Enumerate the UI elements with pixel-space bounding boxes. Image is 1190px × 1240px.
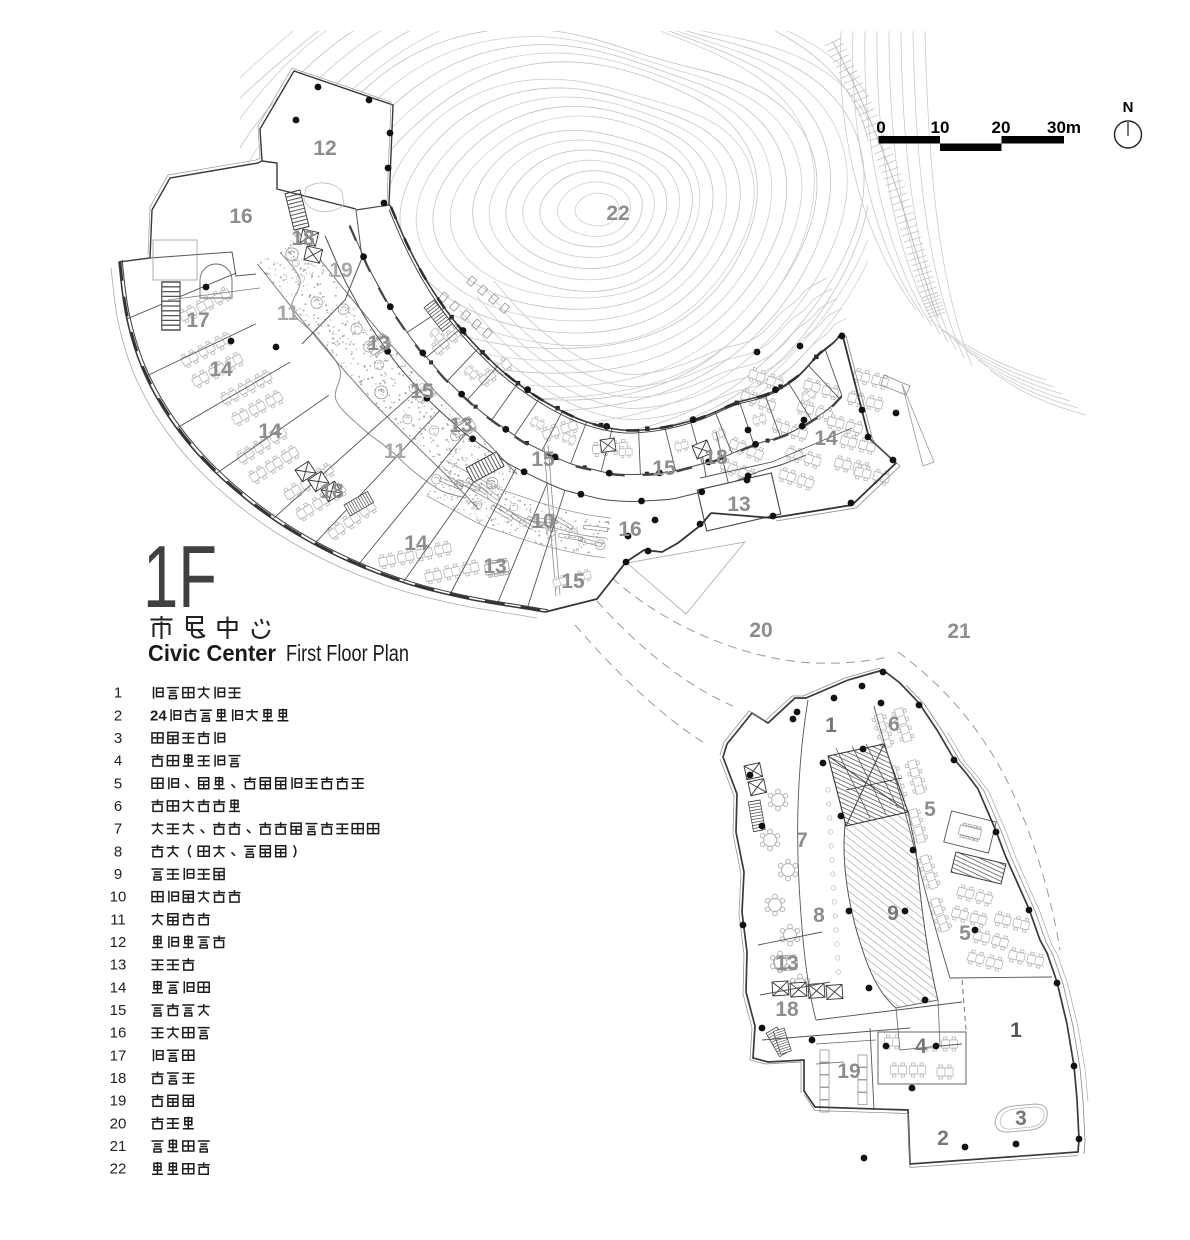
svg-text:15: 15: [410, 380, 434, 403]
svg-text:13: 13: [727, 493, 750, 516]
svg-text:15: 15: [110, 1002, 127, 1019]
svg-text:30m: 30m: [1047, 118, 1081, 137]
svg-text:8: 8: [813, 904, 825, 927]
svg-text:15: 15: [652, 457, 676, 480]
svg-text:12: 12: [313, 137, 336, 160]
svg-text:21: 21: [110, 1138, 127, 1155]
svg-text:22: 22: [606, 202, 629, 225]
svg-text:14: 14: [110, 979, 127, 996]
svg-text:18: 18: [704, 446, 728, 469]
svg-text:14: 14: [404, 532, 428, 555]
svg-text:5: 5: [924, 798, 936, 821]
svg-text:3: 3: [114, 730, 122, 747]
svg-text:2: 2: [937, 1127, 949, 1150]
svg-text:5: 5: [959, 922, 971, 945]
svg-text:14: 14: [258, 420, 282, 443]
svg-text:13: 13: [449, 414, 472, 437]
svg-text:10: 10: [531, 510, 554, 533]
svg-text:First Floor Plan: First Floor Plan: [286, 640, 409, 666]
svg-text:6: 6: [114, 798, 122, 815]
svg-text:15: 15: [531, 448, 555, 471]
svg-text:3: 3: [1015, 1107, 1027, 1130]
svg-text:19: 19: [110, 1093, 127, 1110]
svg-text:20: 20: [110, 1115, 127, 1132]
svg-text:19: 19: [329, 259, 352, 282]
svg-text:10: 10: [110, 889, 127, 906]
svg-text:17: 17: [110, 1047, 127, 1064]
svg-text:N: N: [1123, 99, 1134, 116]
svg-text:1: 1: [825, 714, 837, 737]
svg-text:0: 0: [876, 118, 885, 137]
svg-text:4: 4: [114, 753, 122, 770]
svg-text:10: 10: [931, 118, 950, 137]
svg-text:13: 13: [110, 957, 127, 974]
svg-text:8: 8: [114, 843, 122, 860]
svg-text:24: 24: [150, 707, 167, 724]
svg-text:6: 6: [888, 713, 900, 736]
svg-text:5: 5: [114, 775, 122, 792]
svg-text:18: 18: [291, 227, 315, 250]
svg-text:16: 16: [229, 205, 252, 228]
svg-text:11: 11: [110, 911, 126, 928]
svg-text:1: 1: [1010, 1019, 1022, 1042]
svg-text:13: 13: [775, 952, 798, 975]
svg-text:20: 20: [992, 118, 1011, 137]
svg-text:17: 17: [186, 309, 209, 332]
svg-text:2: 2: [114, 707, 122, 724]
svg-text:19: 19: [837, 1060, 860, 1083]
svg-text:1F: 1F: [143, 527, 217, 626]
svg-text:9: 9: [887, 902, 899, 925]
svg-text:16: 16: [618, 518, 641, 541]
svg-text:9: 9: [114, 866, 122, 883]
svg-text:18: 18: [320, 480, 344, 503]
svg-text:18: 18: [110, 1070, 127, 1087]
svg-text:14: 14: [209, 358, 233, 381]
svg-text:11: 11: [277, 302, 300, 325]
svg-text:7: 7: [114, 821, 122, 838]
svg-text:13: 13: [483, 555, 506, 578]
svg-text:11: 11: [384, 440, 407, 463]
svg-text:4: 4: [915, 1035, 927, 1058]
svg-text:18: 18: [775, 998, 799, 1021]
svg-text:20: 20: [749, 619, 772, 642]
svg-text:13: 13: [367, 332, 390, 355]
svg-text:16: 16: [110, 1025, 127, 1042]
svg-text:22: 22: [110, 1161, 127, 1178]
svg-text:1: 1: [114, 685, 122, 702]
svg-text:21: 21: [947, 620, 971, 643]
svg-text:Civic Center: Civic Center: [148, 640, 276, 666]
svg-text:14: 14: [814, 427, 838, 450]
svg-text:12: 12: [110, 934, 127, 951]
svg-text:15: 15: [561, 570, 585, 593]
svg-text:7: 7: [796, 829, 808, 852]
